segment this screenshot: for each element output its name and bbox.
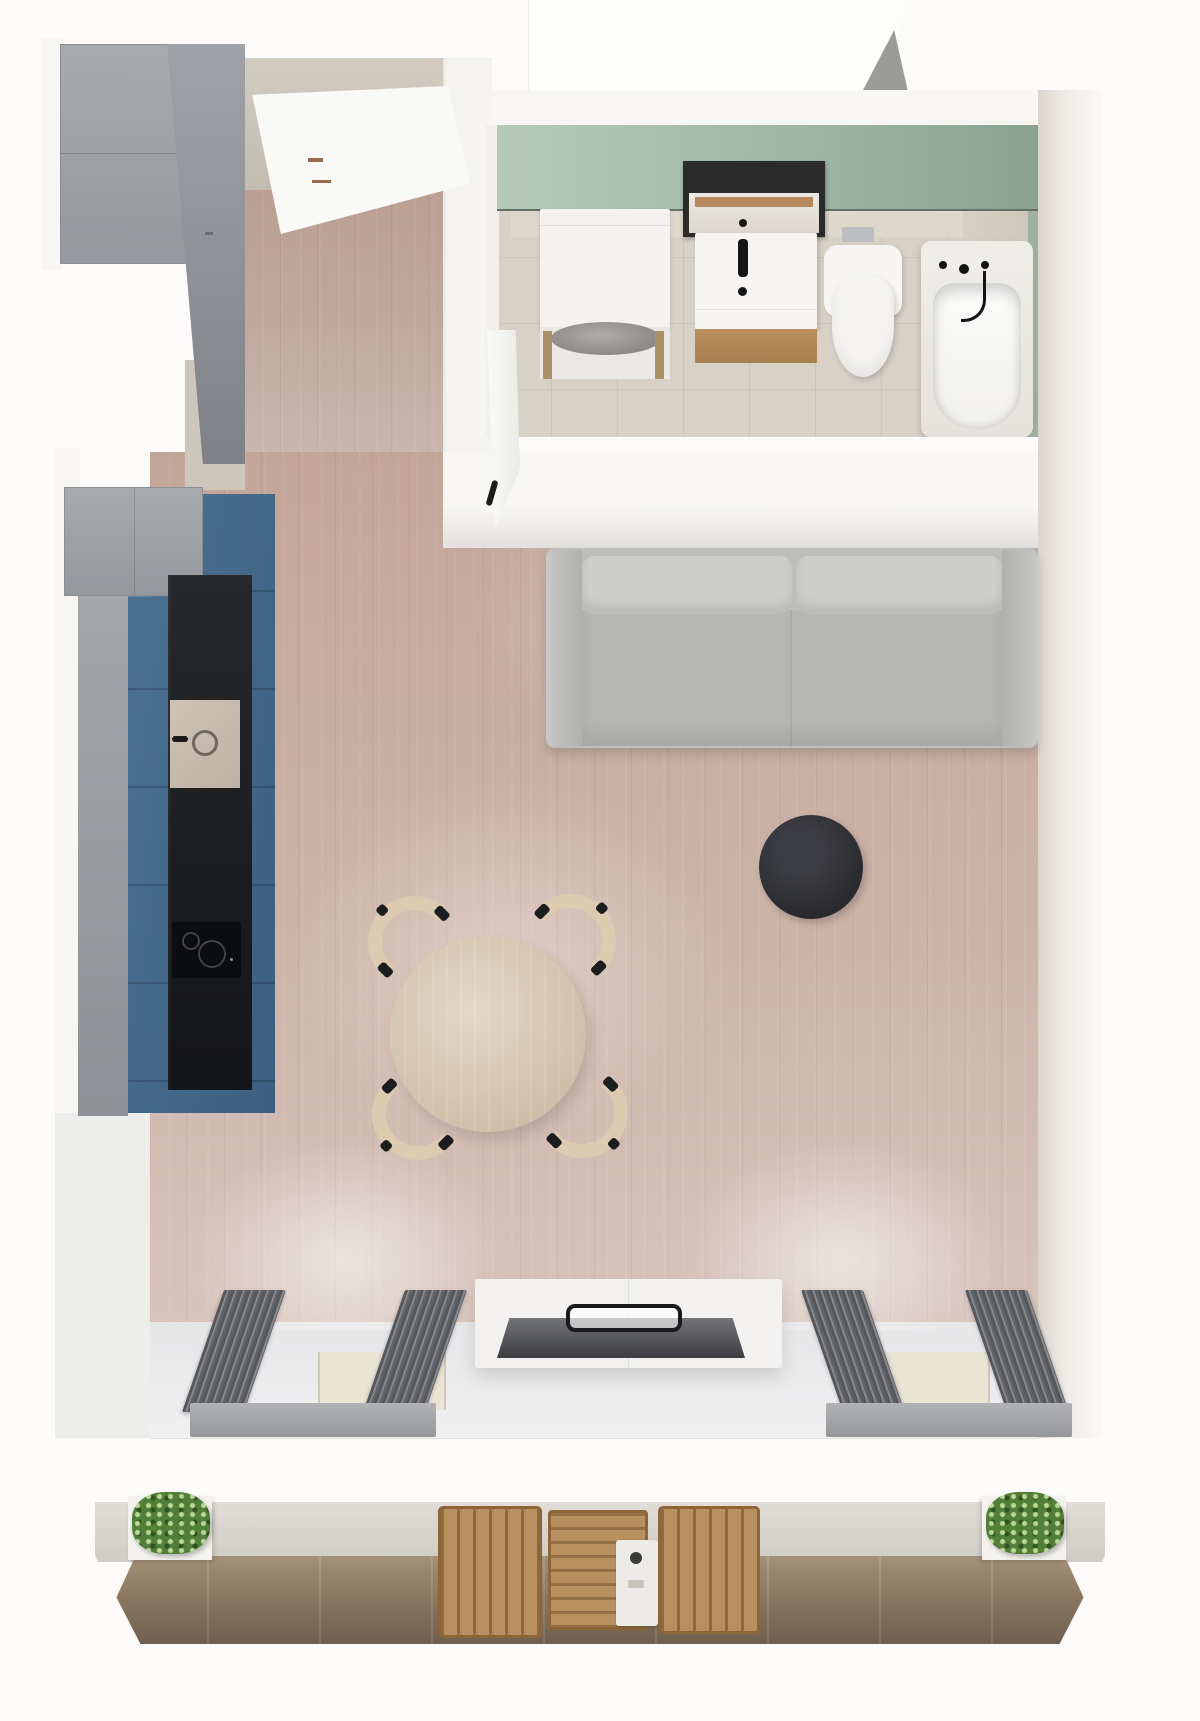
outdoor-chair-left — [438, 1506, 542, 1638]
round-dining-table — [390, 936, 586, 1132]
bathtub — [921, 241, 1033, 437]
kitchen-sink-inset — [170, 700, 240, 788]
gray-wardrobe — [60, 44, 188, 264]
bathroom-top-wall — [485, 90, 1038, 130]
upper-cabinet-seam — [134, 488, 135, 595]
right-exterior-wall — [1038, 90, 1102, 1438]
tray-item-dark — [630, 1552, 642, 1564]
vanity-faucet — [738, 239, 748, 277]
washer-leg-right — [655, 331, 664, 379]
scene-title: Studio apartment — top-down 3D floor pla… — [0, 21, 1, 22]
wall-hung-toilet — [832, 275, 894, 377]
sofa — [546, 548, 1038, 748]
sofa-back-cushion-left — [582, 556, 792, 614]
bath-faucet-handle-left — [939, 261, 947, 269]
sofa-seat — [582, 610, 1002, 746]
outdoor-chair-right — [658, 1506, 760, 1634]
washer-drum — [551, 322, 661, 355]
kitchen-left-gray-panel — [78, 596, 128, 1116]
vanity-wood-base — [695, 329, 817, 363]
sink-faucet — [172, 736, 188, 742]
cooktop-ring-small — [182, 932, 200, 950]
bottom-mask — [0, 1644, 1200, 1721]
sofa-back-cushion-right — [796, 556, 1002, 614]
vanity-drawer-seam — [695, 309, 817, 310]
cabinet-handle — [205, 232, 213, 235]
washing-machine — [540, 209, 670, 329]
vanity-faucet-dot-top — [739, 219, 747, 227]
top-exterior-wall — [528, 0, 907, 92]
plant-right — [986, 1492, 1064, 1554]
kitchen-countertop — [168, 575, 252, 1090]
cooktop-indicator — [230, 958, 233, 961]
bath-faucet-handle-right — [981, 261, 989, 269]
tray-item-light — [628, 1580, 644, 1588]
outdoor-tray — [616, 1540, 658, 1626]
floor-plan: Studio apartment — top-down 3D floor pla… — [0, 0, 1200, 1721]
door-handle — [308, 158, 323, 162]
window-sill-left — [190, 1403, 436, 1437]
black-round-side-table — [759, 815, 863, 919]
flush-plate — [842, 227, 874, 242]
plant-left — [132, 1492, 210, 1554]
entry-left-wall — [42, 38, 62, 270]
mirror-wood-reflection — [695, 197, 813, 207]
cooktop-ring-large — [198, 940, 226, 968]
living-top-wall — [443, 452, 1038, 548]
sofa-seat-seam — [790, 610, 792, 746]
bathroom — [485, 125, 1038, 437]
sink-basin-ring — [192, 730, 218, 756]
below-kitchen-wall — [55, 1113, 150, 1438]
sofa-armrest-right — [1002, 550, 1038, 746]
window-sill-right — [826, 1403, 1072, 1437]
sofa-armrest-left — [546, 550, 582, 746]
wardrobe-door-seam — [61, 153, 187, 154]
vanity-drain-dot — [738, 287, 747, 296]
door-handle-plate — [312, 180, 331, 183]
washer-lid-seam — [540, 225, 670, 226]
vanity-sink-cabinet — [695, 233, 817, 329]
tv-mount — [566, 1304, 682, 1332]
washer-leg-left — [543, 331, 552, 379]
mirror — [683, 161, 825, 237]
induction-cooktop — [172, 922, 241, 978]
